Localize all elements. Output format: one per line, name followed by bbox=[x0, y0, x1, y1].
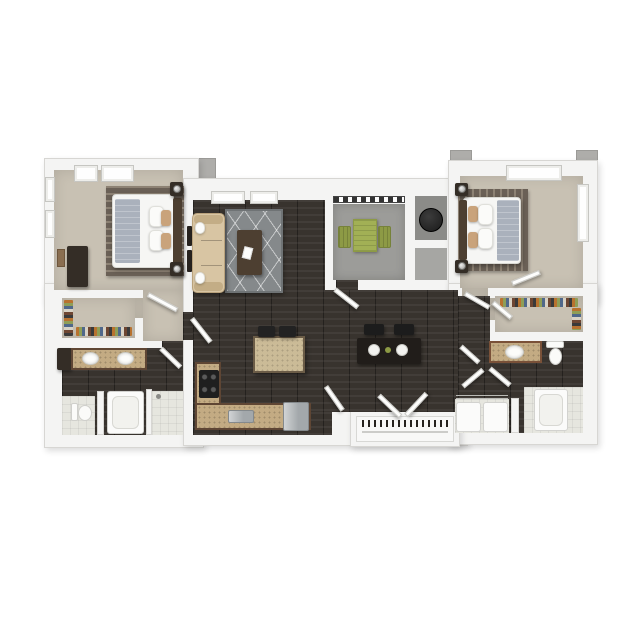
bathroom1-toilet bbox=[78, 405, 92, 421]
kitchen-sink bbox=[228, 410, 254, 423]
table-lamp bbox=[173, 185, 181, 193]
balcony-doorway bbox=[336, 280, 358, 290]
range-stove bbox=[199, 370, 219, 398]
bedroom2-headboard bbox=[459, 200, 467, 260]
balcony-railing bbox=[333, 196, 405, 203]
dining-chair bbox=[394, 324, 414, 335]
table-lamp bbox=[458, 262, 466, 270]
kitchen-island bbox=[253, 336, 305, 373]
bedroom1-window-left-2 bbox=[45, 210, 55, 238]
bedroom2-accent-pillow bbox=[468, 206, 478, 222]
bathroom1-sink bbox=[82, 352, 99, 365]
water-heater bbox=[419, 208, 443, 232]
sofa-seam bbox=[201, 240, 222, 241]
bedroom1-window-left-1 bbox=[45, 177, 55, 202]
sofa-seam bbox=[201, 265, 222, 266]
bathroom1-toilet-tank bbox=[71, 403, 78, 421]
bedroom2-pillow bbox=[478, 204, 493, 225]
bedroom1-headboard bbox=[173, 198, 182, 264]
balcony-chair bbox=[338, 226, 351, 248]
balcony-chair bbox=[378, 226, 391, 248]
bathroom1-sink bbox=[117, 352, 134, 365]
sofa-pillow bbox=[195, 272, 205, 284]
bar-stool bbox=[258, 326, 275, 337]
sofa-pillow bbox=[195, 222, 205, 234]
bathroom1-linen-cabinet bbox=[57, 348, 71, 370]
bedroom1-window-top-2 bbox=[101, 165, 134, 182]
bedroom1-window-top-1 bbox=[74, 165, 98, 182]
dryer bbox=[483, 402, 508, 432]
coat-closet-rod bbox=[362, 420, 448, 427]
bathroom2-toilet bbox=[549, 348, 562, 365]
bedroom2-pillow bbox=[478, 228, 493, 249]
bathroom1-partition bbox=[146, 389, 152, 435]
table-centerpiece bbox=[385, 347, 391, 353]
bathroom1-shower-head bbox=[156, 394, 161, 399]
washer bbox=[456, 402, 481, 432]
bathroom2-toilet-tank bbox=[546, 341, 564, 348]
bedroom2-window-right bbox=[577, 184, 589, 242]
table-lamp bbox=[458, 185, 466, 193]
bedroom1-accent-pillow bbox=[161, 233, 171, 249]
floor-plan-canvas bbox=[0, 0, 639, 639]
place-setting bbox=[368, 344, 380, 356]
bedroom1-blanket bbox=[115, 199, 140, 263]
bar-stool bbox=[279, 326, 296, 337]
place-setting bbox=[396, 344, 408, 356]
bathroom1-partition bbox=[97, 391, 104, 435]
storage-closet-floor bbox=[415, 248, 447, 280]
bathroom2-partition bbox=[511, 398, 519, 433]
refrigerator bbox=[283, 402, 309, 431]
closet2-hanging-clothes bbox=[500, 298, 578, 307]
bedroom1-accent-pillow bbox=[161, 210, 171, 226]
living-room-window-2 bbox=[250, 191, 278, 204]
closet1-hanging-clothes bbox=[76, 327, 132, 336]
closet2-hanging-clothes bbox=[572, 308, 581, 330]
balcony-table bbox=[353, 219, 377, 252]
floor-plan bbox=[0, 0, 639, 639]
bedroom2-blanket bbox=[497, 200, 519, 261]
bathroom1-bathtub-basin bbox=[112, 396, 139, 429]
bathroom2-sink bbox=[505, 345, 524, 359]
living-room-window-1 bbox=[211, 191, 245, 204]
laundry-wire-shelf bbox=[456, 395, 508, 401]
closet1-hanging-clothes bbox=[64, 300, 73, 336]
dining-chair bbox=[364, 324, 384, 335]
closet1-doorway bbox=[135, 298, 143, 318]
bedroom1-wall-art bbox=[57, 249, 65, 267]
bedroom2-window-top bbox=[506, 165, 562, 181]
hall-living-doorway bbox=[183, 312, 193, 340]
table-lamp bbox=[173, 265, 181, 273]
bathroom1-doorway bbox=[162, 341, 183, 348]
bedroom2-accent-pillow bbox=[468, 232, 478, 248]
coat-closet-shelf bbox=[362, 431, 448, 433]
bathroom2-bathtub-basin bbox=[539, 394, 563, 426]
bedroom1-dresser bbox=[67, 246, 88, 287]
